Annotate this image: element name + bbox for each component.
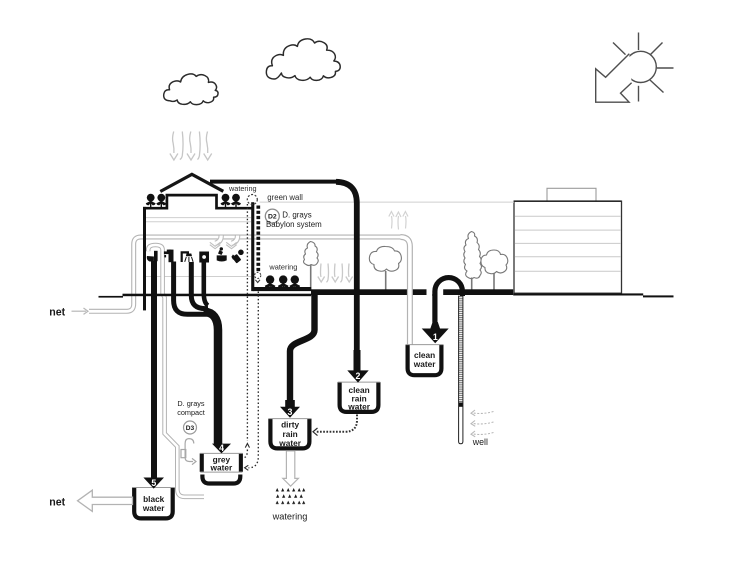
svg-text:net: net <box>49 306 65 318</box>
svg-text:D3: D3 <box>186 425 195 432</box>
svg-text:watering: watering <box>268 262 297 271</box>
svg-text:Babylon system: Babylon system <box>266 220 322 229</box>
svg-text:compact: compact <box>177 408 205 417</box>
svg-text:water: water <box>142 503 165 513</box>
svg-text:D. grays: D. grays <box>282 210 311 219</box>
svg-text:water: water <box>278 438 301 448</box>
svg-text:net: net <box>49 496 65 508</box>
svg-text:water: water <box>347 402 370 412</box>
svg-text:5: 5 <box>151 478 156 488</box>
svg-text:well: well <box>472 437 488 447</box>
svg-text:green wall: green wall <box>267 193 303 202</box>
svg-text:D. grays: D. grays <box>177 399 205 408</box>
svg-text:watering: watering <box>228 184 257 193</box>
svg-text:watering: watering <box>272 511 308 521</box>
svg-text:4: 4 <box>219 443 224 453</box>
svg-text:water: water <box>210 463 233 473</box>
svg-text:water: water <box>413 359 436 369</box>
svg-text:1: 1 <box>433 332 438 342</box>
svg-text:3: 3 <box>288 407 293 417</box>
svg-text:2: 2 <box>356 371 361 381</box>
